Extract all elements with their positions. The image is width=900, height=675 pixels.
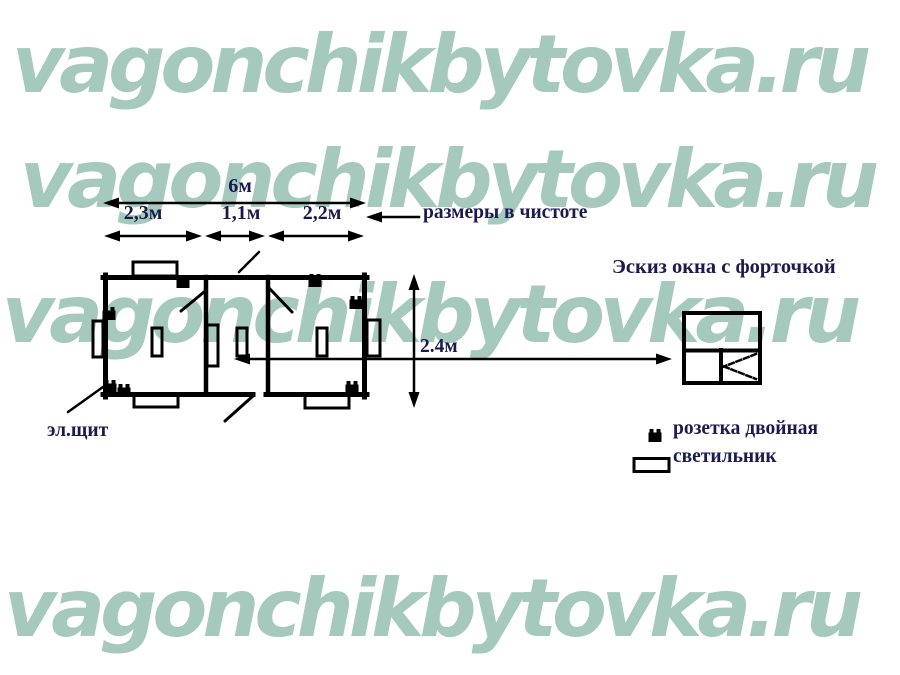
lamp-icon	[93, 321, 103, 357]
electrical-panel-label: эл.щит	[47, 421, 108, 441]
socket-icon	[346, 381, 359, 394]
legend-lamp-label: светильник	[673, 447, 777, 467]
dimension-label-room-right: 2,2м	[303, 203, 342, 223]
fixture-icon	[207, 325, 218, 366]
socket-icon	[118, 384, 131, 397]
dimension-label-height: 2.4м	[420, 337, 458, 357]
socket-icons	[103, 274, 363, 397]
fixture-icon	[237, 328, 247, 356]
fixture-icon	[317, 328, 327, 356]
electrical-panel-icon	[104, 380, 117, 393]
lamp-icon	[367, 320, 380, 356]
dimensions-note-label: размеры в чистоте	[423, 203, 587, 223]
dimension-label-total: 6м	[228, 176, 252, 196]
casement-opening-icon	[724, 354, 756, 379]
lamp-icon	[133, 262, 177, 276]
legend-symbols	[634, 429, 669, 472]
window-sketch	[684, 313, 760, 383]
fixture-icon	[152, 328, 162, 356]
window-sketch-title: Эскиз окна с форточкой	[612, 257, 836, 278]
dimension-arrows-rooms	[104, 231, 364, 242]
dimension-label-room-middle: 1,1м	[222, 203, 261, 223]
socket-icon	[350, 296, 363, 309]
legend-socket-icon	[649, 429, 662, 442]
legend-lamp-icon	[634, 459, 669, 472]
socket-icon	[103, 307, 116, 320]
legend-socket-label: розетка двойная	[673, 419, 818, 439]
dimension-label-room-left: 2,3м	[124, 203, 163, 223]
note-pointer-arrow	[366, 212, 419, 223]
dimension-arrow-height	[409, 274, 420, 408]
